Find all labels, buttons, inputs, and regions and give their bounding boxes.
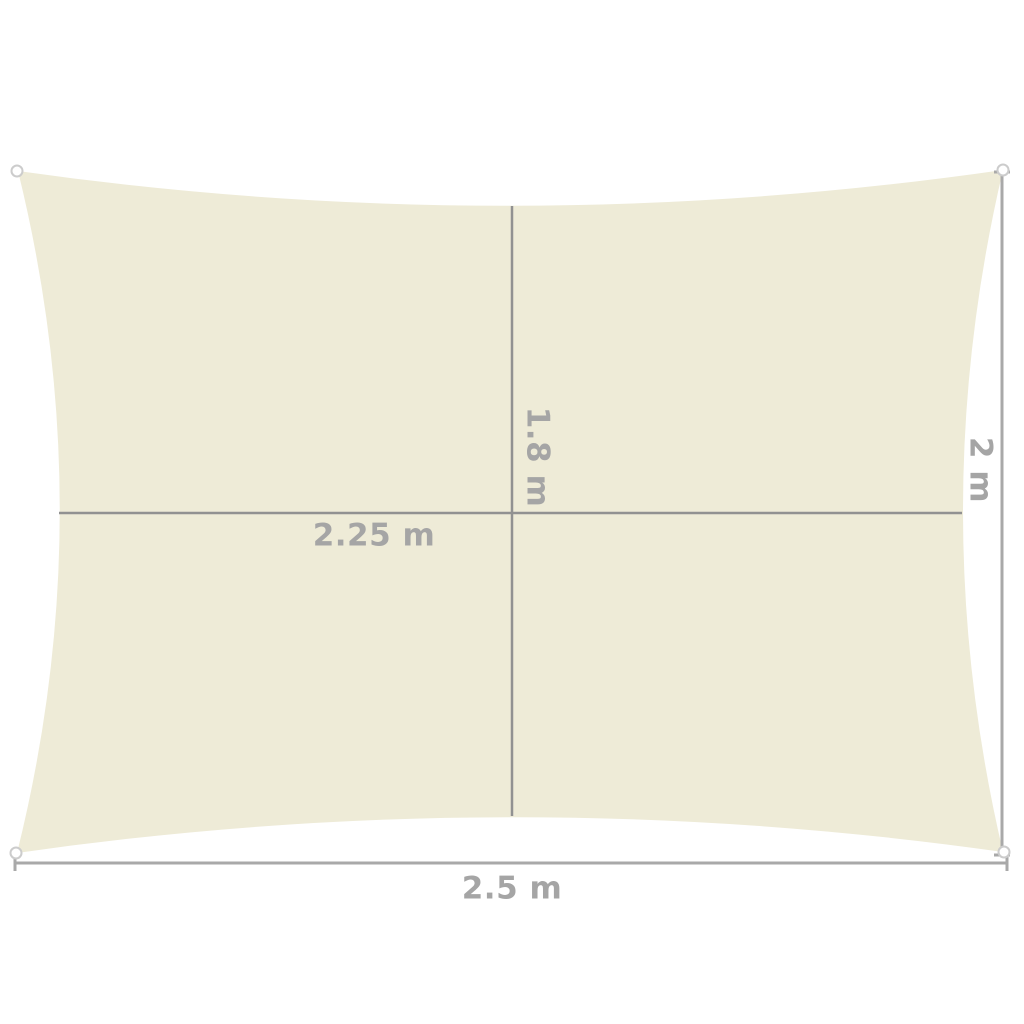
corner-ring-bottom-left (11, 848, 22, 859)
inner-width-label: 2.25 m (313, 521, 436, 552)
outer-width-label: 2.5 m (462, 874, 563, 905)
outer-height-label: 2 m (965, 437, 996, 503)
inner-height-label: 1.8 m (522, 407, 553, 508)
corner-ring-top-left (12, 166, 23, 177)
corner-ring-bottom-right (999, 847, 1010, 858)
shade-sail-dimension-diagram: 2.25 m 1.8 m 2.5 m 2 m (0, 0, 1024, 1024)
shade-sail-fabric (17, 170, 1003, 853)
corner-ring-top-right (998, 165, 1009, 176)
